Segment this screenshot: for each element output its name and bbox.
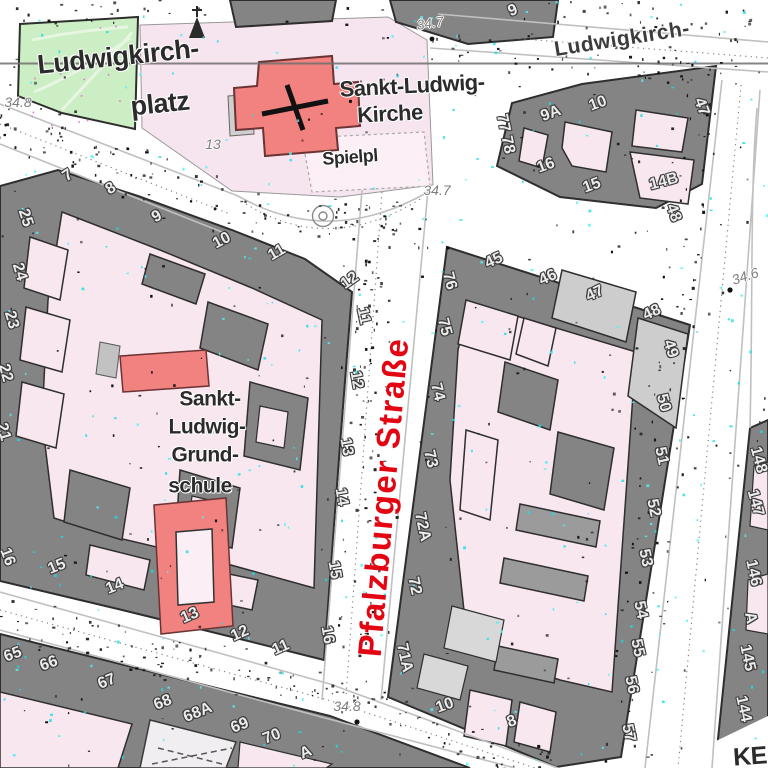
- gray-annex: [96, 342, 120, 378]
- survey-dot: [430, 37, 435, 42]
- ludwigkirchplatz-park: [18, 17, 138, 129]
- east-block: [388, 247, 690, 767]
- edge-building: [746, 574, 768, 634]
- map-canvas: [0, 0, 768, 768]
- edge-building: [514, 702, 556, 752]
- courtyard-building: [519, 128, 548, 168]
- edge-building: [464, 690, 512, 746]
- west-block: [0, 170, 352, 660]
- chapel-cross-icon: [192, 6, 202, 17]
- survey-dot: [727, 287, 732, 292]
- survey-dot: [354, 719, 359, 724]
- fountain-circle: [319, 212, 327, 220]
- fountain-circle: [313, 206, 334, 227]
- far-east-strip: [660, 420, 768, 768]
- inner-court: [256, 406, 288, 448]
- edge-building: [16, 382, 64, 448]
- courtyard-building: [630, 152, 694, 204]
- park-layer: [18, 17, 138, 129]
- school-inner-court: [176, 529, 214, 605]
- northeast-block: [497, 66, 716, 208]
- map-screenshot: Pfalzburger Straße 789101112252423222111…: [0, 0, 768, 768]
- school-building-north: [120, 350, 209, 392]
